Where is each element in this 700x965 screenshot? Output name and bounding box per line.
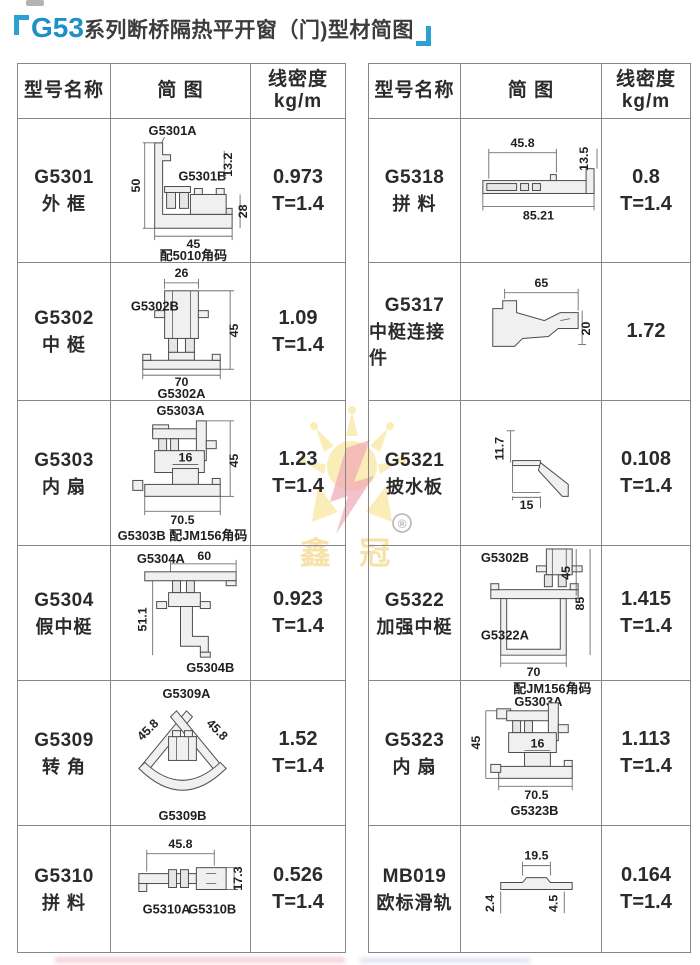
model-name: 假中梃	[36, 614, 93, 640]
header-density-label2: kg/m	[274, 91, 322, 113]
density-cell: 1.415 T=1.4	[602, 546, 691, 681]
svg-text:45.8: 45.8	[510, 136, 534, 150]
profile-diagram-g5301: G5301A 50 G5301B 13.2 28	[111, 119, 250, 262]
svg-text:50: 50	[129, 179, 143, 193]
model-code: G5304	[34, 587, 94, 614]
diagram-cell: 配JM156角码 G5303A 45 16 70	[461, 681, 602, 826]
table-row: G5302 中 梃 26 G5302B 45	[18, 263, 346, 401]
profile-diagram-g5323: 配JM156角码 G5303A 45 16 70	[461, 681, 601, 825]
thickness-value: T=1.4	[272, 753, 324, 780]
svg-text:13.2: 13.2	[221, 153, 235, 177]
scan-artifact	[55, 957, 345, 963]
model-name: 拼 料	[392, 191, 436, 217]
density-value: 1.72	[627, 318, 666, 345]
diagram-cell: G5303A 45 16 70.5 G5303B	[111, 401, 251, 546]
profile-diagram-g5309: G5309A 45.8 45.8 G5309B	[111, 681, 250, 825]
header-density-label1: 线密度	[616, 69, 676, 91]
density-value: 0.8	[632, 164, 660, 191]
table-row: G5318 拼 料 45.8 13.5 85.21 0.8	[369, 119, 691, 263]
table-header-row: 型号名称 简 图 线密度 kg/m	[18, 64, 346, 119]
diagram-cell: G5302B G5322A 45 85 70	[461, 546, 602, 681]
model-cell: G5323 内 扇	[369, 681, 461, 826]
svg-text:20: 20	[579, 322, 593, 336]
density-value: 1.23	[279, 446, 318, 473]
profile-table-left: 型号名称 简 图 线密度 kg/m G5301 外 框 G5301A	[17, 63, 346, 953]
svg-text:G5301A: G5301A	[149, 123, 197, 138]
model-code: G5323	[385, 727, 445, 754]
svg-text:G5302B: G5302B	[131, 299, 179, 314]
svg-text:70.5: 70.5	[524, 788, 548, 802]
density-cell: 1.113 T=1.4	[602, 681, 691, 826]
density-cell: 0.164 T=1.4	[602, 826, 691, 953]
svg-text:G5310A: G5310A	[143, 901, 191, 916]
header-diagram-label: 简 图	[157, 80, 203, 102]
thickness-value: T=1.4	[272, 613, 324, 640]
svg-text:G5304B: G5304B	[186, 660, 234, 675]
svg-text:45.8: 45.8	[204, 716, 231, 743]
svg-text:G5302A: G5302A	[157, 386, 205, 400]
svg-text:45: 45	[469, 736, 483, 750]
thickness-value: T=1.4	[620, 889, 672, 916]
model-name: 中梃连接件	[369, 319, 460, 371]
svg-text:配5010角码: 配5010角码	[160, 248, 227, 262]
density-cell: 0.526 T=1.4	[251, 826, 346, 953]
model-name: 内 扇	[42, 474, 86, 500]
title-text: 系列断桥隔热平开窗（门)型材简图	[84, 13, 414, 46]
profile-diagram-mb019: 19.5 2.4 4.5	[461, 826, 601, 952]
svg-text:70.5: 70.5	[170, 513, 194, 527]
svg-text:26: 26	[175, 266, 189, 280]
svg-text:19.5: 19.5	[524, 849, 548, 863]
title-series: G53	[31, 13, 84, 43]
profile-diagram-g5310: 45.8 17.3 G5310A G5310B	[111, 826, 250, 952]
svg-text:13.5: 13.5	[577, 147, 591, 171]
density-cell: 1.72	[602, 263, 691, 401]
model-cell: G5318 拼 料	[369, 119, 461, 263]
svg-text:45: 45	[227, 324, 241, 338]
density-cell: 1.52 T=1.4	[251, 681, 346, 826]
header-model-cell: 型号名称	[369, 64, 461, 119]
scan-artifact	[360, 958, 530, 963]
density-value: 0.526	[273, 862, 323, 889]
header-model-cell: 型号名称	[18, 64, 111, 119]
table-row: G5304 假中梃 G5304A 60 51.1 G53	[18, 546, 346, 681]
model-code: G5322	[385, 587, 445, 614]
model-code: G5310	[34, 863, 94, 890]
thickness-value: T=1.4	[620, 753, 672, 780]
diagram-cell: 45.8 17.3 G5310A G5310B	[111, 826, 251, 953]
model-code: G5303	[34, 447, 94, 474]
diagram-cell: 26 G5302B 45 70 G5302A	[111, 263, 251, 401]
title-bracket-open-icon	[14, 15, 29, 35]
model-name: 中 梃	[42, 332, 86, 358]
model-code: G5302	[34, 305, 94, 332]
model-code: G5309	[34, 727, 94, 754]
profile-diagram-g5318: 45.8 13.5 85.21	[461, 119, 601, 262]
density-value: 0.923	[273, 586, 323, 613]
thickness-value: T=1.4	[272, 473, 324, 500]
model-cell: G5310 拼 料	[18, 826, 111, 953]
page-title: G53 系列断桥隔热平开窗（门)型材简图	[14, 13, 431, 46]
header-density-cell: 线密度 kg/m	[602, 64, 691, 119]
density-cell: 0.973 T=1.4	[251, 119, 346, 263]
header-density-label1: 线密度	[268, 69, 328, 91]
density-value: 1.415	[621, 586, 671, 613]
table-row: G5323 内 扇 配JM156角码 G5303A 45	[369, 681, 691, 826]
svg-text:16: 16	[531, 737, 545, 751]
diagram-cell: G5304A 60 51.1 G5304B	[111, 546, 251, 681]
diagram-cell: 45.8 13.5 85.21	[461, 119, 602, 263]
svg-text:G5309B: G5309B	[158, 808, 206, 823]
model-name: 加强中梃	[377, 614, 453, 640]
scan-artifact	[26, 0, 44, 6]
thickness-value: T=1.4	[620, 191, 672, 218]
profile-diagram-g5304: G5304A 60 51.1 G5304B	[111, 546, 250, 680]
svg-text:15: 15	[520, 498, 534, 512]
profile-diagram-g5317: 65 20	[461, 263, 601, 400]
profile-diagram-g5322: G5302B G5322A 45 85 70	[461, 546, 601, 680]
svg-text:51.1: 51.1	[136, 607, 150, 631]
diagram-cell: G5301A 50 G5301B 13.2 28	[111, 119, 251, 263]
svg-text:2.4: 2.4	[483, 895, 497, 912]
model-name: 欧标滑轨	[377, 890, 453, 916]
table-row: G5310 拼 料 45.8 17.3 G5310A G5310B	[18, 826, 346, 953]
svg-text:45: 45	[559, 566, 573, 580]
svg-text:85: 85	[573, 597, 587, 611]
model-cell: G5301 外 框	[18, 119, 111, 263]
density-value: 1.09	[279, 305, 318, 332]
svg-text:45.8: 45.8	[168, 837, 192, 851]
model-cell: G5309 转 角	[18, 681, 111, 826]
svg-text:45.8: 45.8	[134, 716, 161, 743]
header-diagram-cell: 简 图	[111, 64, 251, 119]
svg-text:G5303B 配JM156角码: G5303B 配JM156角码	[118, 528, 248, 543]
model-code: G5317	[385, 292, 445, 319]
model-cell: G5303 内 扇	[18, 401, 111, 546]
table-row: G5303 内 扇 G5303A 45 16	[18, 401, 346, 546]
svg-text:G5303A: G5303A	[156, 403, 204, 418]
svg-text:70: 70	[527, 665, 541, 679]
model-name: 内 扇	[392, 754, 436, 780]
model-cell: G5321 披水板	[369, 401, 461, 546]
header-diagram-cell: 简 图	[461, 64, 602, 119]
model-name: 外 框	[42, 191, 86, 217]
header-model-label: 型号名称	[374, 80, 454, 102]
svg-text:60: 60	[197, 549, 211, 563]
model-name: 转 角	[42, 754, 86, 780]
table-row: G5317 中梃连接件 65 20 1.72	[369, 263, 691, 401]
density-cell: 1.09 T=1.4	[251, 263, 346, 401]
diagram-cell: 19.5 2.4 4.5	[461, 826, 602, 953]
svg-text:G5323B: G5323B	[510, 803, 558, 818]
table-row: MB019 欧标滑轨 19.5 2.4 4.5 0.164 T=1.4	[369, 826, 691, 953]
thickness-value: T=1.4	[620, 473, 672, 500]
table-row: G5321 披水板 11.7 15 0.108 T=1.4	[369, 401, 691, 546]
table-row: G5309 转 角 G5309A 45.8 45.8 G5309B 1.52 T…	[18, 681, 346, 826]
density-value: 1.113	[622, 726, 671, 753]
model-code: G5301	[34, 164, 94, 191]
model-name: 披水板	[386, 474, 443, 500]
model-cell: G5304 假中梃	[18, 546, 111, 681]
density-value: 0.108	[621, 446, 671, 473]
svg-text:11.7: 11.7	[493, 437, 507, 461]
svg-text:4.5: 4.5	[546, 895, 560, 912]
profile-diagram-g5303: G5303A 45 16 70.5 G5303B	[111, 401, 250, 545]
density-cell: 1.23 T=1.4	[251, 401, 346, 546]
svg-text:45: 45	[227, 454, 241, 468]
svg-text:28: 28	[236, 204, 250, 218]
title-bracket-close-icon	[416, 26, 431, 46]
table-header-row: 型号名称 简 图 线密度 kg/m	[369, 64, 691, 119]
svg-text:G5309A: G5309A	[162, 686, 210, 701]
svg-text:G5302B: G5302B	[481, 550, 529, 565]
density-cell: 0.8 T=1.4	[602, 119, 691, 263]
model-name: 拼 料	[42, 890, 86, 916]
model-cell: MB019 欧标滑轨	[369, 826, 461, 953]
model-cell: G5322 加强中梃	[369, 546, 461, 681]
diagram-cell: G5309A 45.8 45.8 G5309B	[111, 681, 251, 826]
density-value: 0.164	[621, 862, 671, 889]
density-value: 0.973	[273, 164, 323, 191]
svg-text:17.3: 17.3	[231, 866, 245, 890]
header-diagram-label: 简 图	[508, 80, 554, 102]
model-cell: G5317 中梃连接件	[369, 263, 461, 401]
thickness-value: T=1.4	[620, 613, 672, 640]
table-row: G5322 加强中梃 G5302B G5322A 45 85	[369, 546, 691, 681]
thickness-value: T=1.4	[272, 332, 324, 359]
header-density-label2: kg/m	[622, 91, 670, 113]
svg-text:G5322A: G5322A	[481, 627, 529, 642]
model-code: MB019	[383, 863, 447, 890]
svg-text:65: 65	[535, 276, 549, 290]
model-cell: G5302 中 梃	[18, 263, 111, 401]
svg-text:G5310B: G5310B	[188, 901, 236, 916]
header-model-label: 型号名称	[24, 80, 104, 102]
diagram-cell: 11.7 15	[461, 401, 602, 546]
density-cell: 0.108 T=1.4	[602, 401, 691, 546]
diagram-cell: 65 20	[461, 263, 602, 401]
density-cell: 0.923 T=1.4	[251, 546, 346, 681]
svg-text:85.21: 85.21	[523, 208, 554, 222]
model-code: G5318	[385, 164, 445, 191]
header-density-cell: 线密度 kg/m	[251, 64, 346, 119]
profile-diagram-g5302: 26 G5302B 45 70 G5302A	[111, 263, 250, 400]
thickness-value: T=1.4	[272, 191, 324, 218]
profile-diagram-g5321: 11.7 15	[461, 401, 601, 545]
svg-text:G5301B: G5301B	[178, 169, 226, 184]
table-row: G5301 外 框 G5301A 50 G5301B 13.2	[18, 119, 346, 263]
model-code: G5321	[385, 447, 445, 474]
profile-table-right: 型号名称 简 图 线密度 kg/m G5318 拼 料 45.8	[368, 63, 691, 953]
thickness-value: T=1.4	[272, 889, 324, 916]
density-value: 1.52	[279, 726, 318, 753]
svg-text:16: 16	[179, 451, 193, 465]
